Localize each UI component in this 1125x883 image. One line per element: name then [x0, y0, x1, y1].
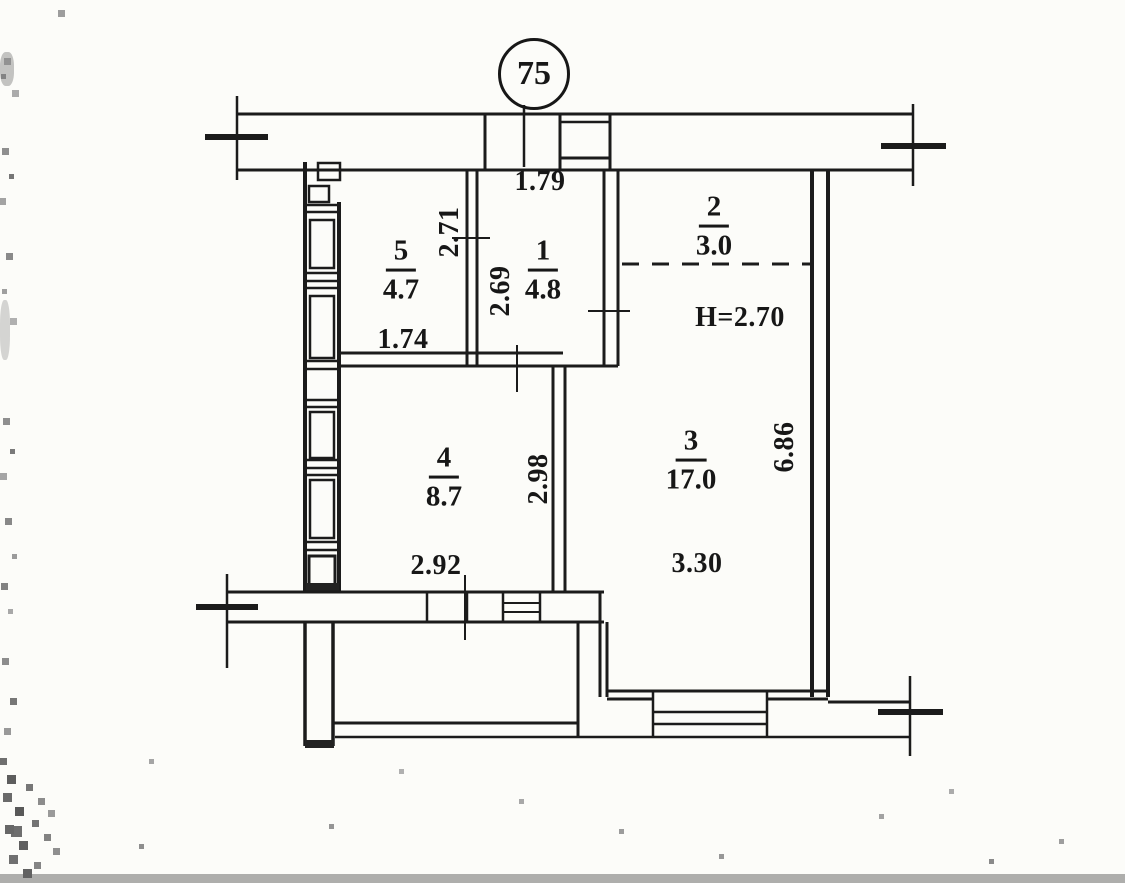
room-5-number: 5 — [386, 235, 417, 272]
dim-room1-depth: 2.69 — [487, 266, 515, 317]
scan-blotch-left-mid — [0, 300, 10, 360]
wall-room4-room3 — [553, 366, 565, 592]
floor-plan: 75 5 4.7 1 4.8 2 3.0 3 17.0 4 8.7 1.79 2… — [0, 0, 1125, 883]
dim-room5-width: 1.74 — [378, 326, 429, 354]
dim-room4-width: 2.92 — [411, 552, 462, 580]
room-1-number: 1 — [528, 235, 559, 272]
dim-room3-width: 3.30 — [672, 550, 723, 578]
room-1-area: 4.8 — [525, 272, 561, 305]
floorplan-drawing — [0, 0, 1125, 883]
room-4-label: 4 8.7 — [426, 442, 462, 513]
room3-south-wall — [600, 592, 910, 737]
room-2-area: 3.0 — [696, 228, 732, 261]
room-5-area: 4.7 — [383, 272, 419, 305]
dim-room5-depth: 2.71 — [436, 207, 464, 258]
dim-room4-depth: 2.98 — [525, 454, 553, 505]
axis-marker-top-right — [881, 104, 946, 186]
apartment-number: 75 — [517, 55, 551, 93]
room-3-number: 3 — [676, 425, 707, 462]
room-5-label: 5 4.7 — [383, 235, 419, 306]
apartment-number-circle: 75 — [498, 38, 570, 110]
wall-room1-room3 — [588, 170, 630, 366]
dim-room3-depth: 6.86 — [771, 422, 799, 473]
axis-marker-top-left — [205, 96, 268, 180]
room-4-area: 8.7 — [426, 479, 462, 512]
scan-noise-bottom-bar — [0, 874, 1125, 883]
axis-marker-bottom-right — [878, 676, 943, 756]
bottom-wall — [227, 575, 604, 640]
left-wall-hatched — [305, 162, 340, 592]
room-3-area: 17.0 — [666, 462, 717, 495]
ceiling-height-note: H=2.70 — [695, 304, 785, 332]
scan-blotch-top-left — [0, 52, 14, 86]
top-wall — [237, 114, 913, 170]
room-1-label: 1 4.8 — [525, 235, 561, 306]
room-2-number: 2 — [699, 191, 730, 228]
room-4-number: 4 — [429, 442, 460, 479]
dim-room1-width: 1.79 — [515, 168, 566, 196]
room-3-label: 3 17.0 — [666, 425, 717, 496]
scan-noise-scatter — [0, 0, 3, 3]
right-wall — [812, 170, 828, 697]
room-2-label: 2 3.0 — [696, 191, 732, 262]
scan-noise-bottom-left — [0, 770, 3, 773]
